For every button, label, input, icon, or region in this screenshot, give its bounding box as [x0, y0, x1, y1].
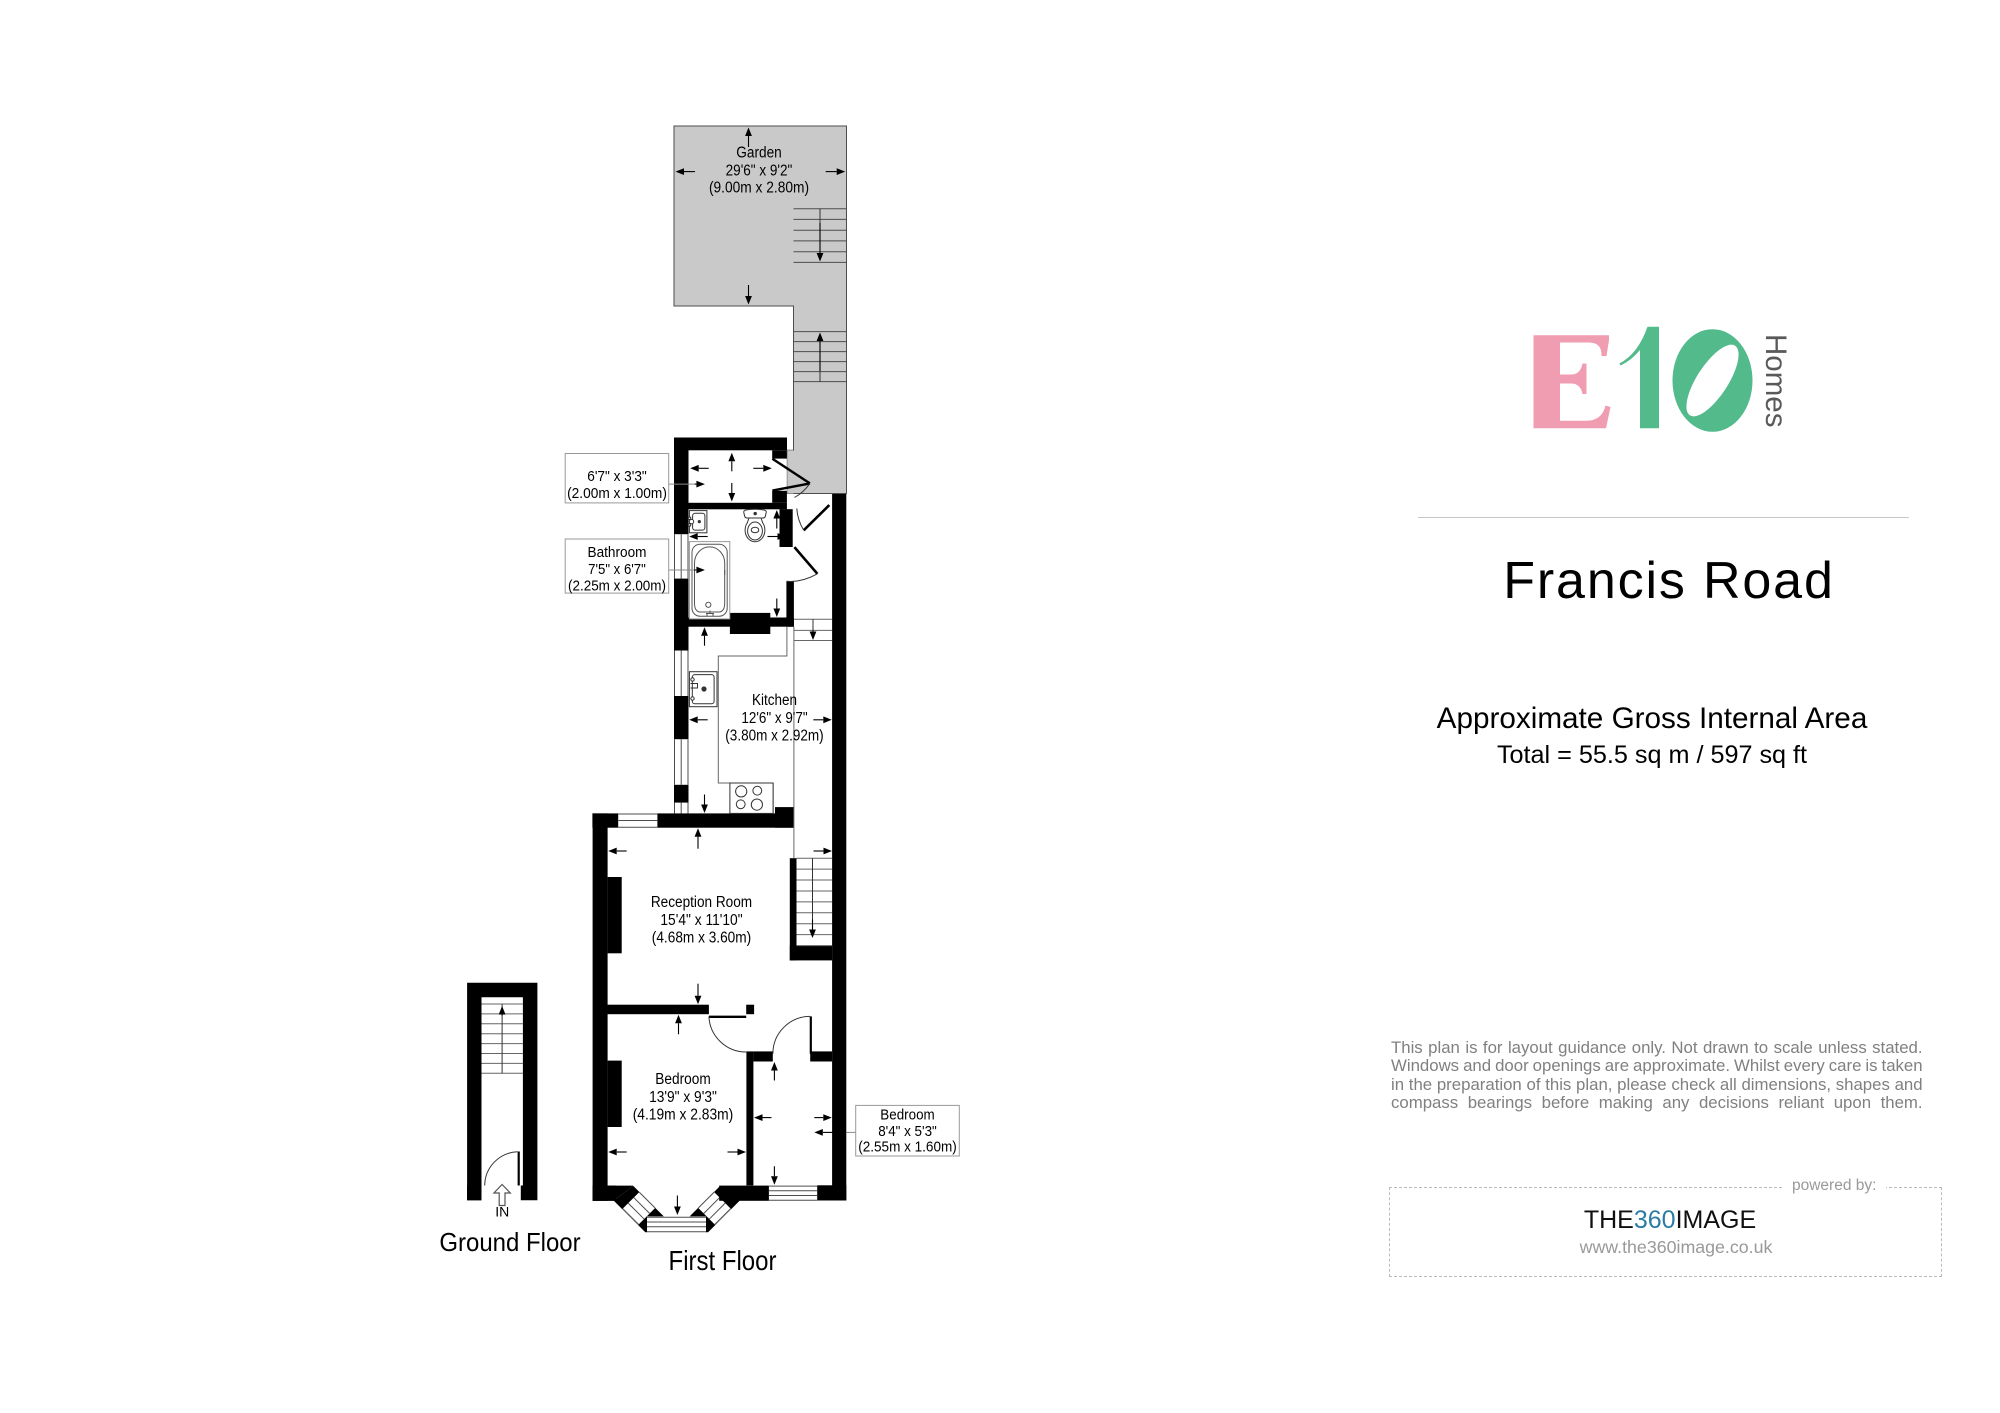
svg-text:Ground Floor: Ground Floor: [439, 1227, 581, 1257]
svg-text:8'4" x 5'3": 8'4" x 5'3": [878, 1123, 937, 1140]
svg-text:(9.00m x 2.80m): (9.00m x 2.80m): [709, 180, 809, 197]
svg-text:IN: IN: [495, 1204, 509, 1220]
svg-text:Bedroom: Bedroom: [880, 1107, 934, 1124]
svg-text:(2.55m x 1.60m): (2.55m x 1.60m): [858, 1139, 957, 1156]
svg-text:(4.68m x 3.60m): (4.68m x 3.60m): [652, 930, 751, 947]
svg-text:(2.25m x 2.00m): (2.25m x 2.00m): [568, 578, 666, 595]
svg-text:6'7" x 3'3": 6'7" x 3'3": [587, 468, 647, 485]
svg-text:Homes: Homes: [1759, 334, 1792, 427]
svg-text:(3.80m x 2.92m): (3.80m x 2.92m): [725, 728, 823, 745]
svg-text:7'5" x 6'7": 7'5" x 6'7": [588, 561, 646, 578]
svg-text:Bedroom: Bedroom: [655, 1071, 710, 1088]
svg-text:15'4" x 11'10": 15'4" x 11'10": [660, 912, 742, 929]
svg-text:Kitchen: Kitchen: [752, 692, 797, 709]
svg-text:29'6" x 9'2": 29'6" x 9'2": [726, 163, 793, 180]
svg-text:(2.00m x 1.00m): (2.00m x 1.00m): [567, 485, 667, 502]
svg-text:13'9" x 9'3": 13'9" x 9'3": [649, 1089, 717, 1106]
svg-text:Bathroom: Bathroom: [588, 544, 647, 561]
svg-text:12'6" x 9'7": 12'6" x 9'7": [741, 710, 807, 727]
svg-text:Reception Room: Reception Room: [651, 894, 752, 911]
svg-text:(4.19m x 2.83m): (4.19m x 2.83m): [633, 1107, 734, 1124]
svg-text:Garden: Garden: [736, 145, 782, 162]
svg-text:First Floor: First Floor: [669, 1245, 777, 1276]
